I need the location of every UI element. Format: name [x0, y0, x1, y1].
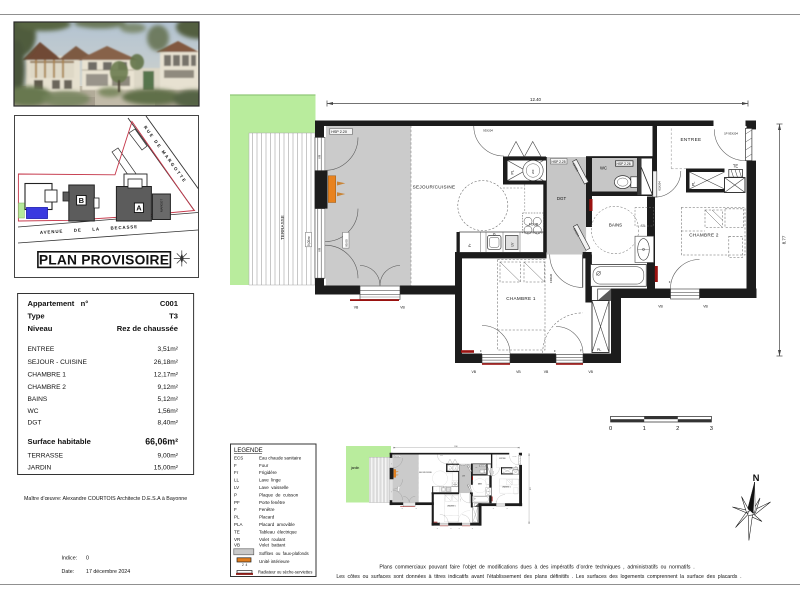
svg-text:Type: Type — [28, 312, 45, 321]
svg-text:1P 93X204: 1P 93X204 — [724, 132, 738, 136]
svg-text:Unité intérieure: Unité intérieure — [259, 559, 290, 564]
svg-text:VB: VB — [400, 306, 405, 310]
svg-text:Four: Four — [259, 463, 269, 468]
svg-text:VB: VB — [703, 305, 708, 309]
svg-text:8,40m²: 8,40m² — [157, 420, 178, 427]
svg-text:Date:: Date: — [62, 569, 75, 575]
svg-text:HSP 2.25: HSP 2.25 — [552, 160, 566, 164]
svg-text:HSP 2.26: HSP 2.26 — [617, 162, 631, 166]
svg-text:VB: VB — [472, 370, 477, 374]
svg-text:9,12m²: 9,12m² — [157, 384, 178, 391]
svg-text:90.00: 90.00 — [344, 239, 348, 247]
svg-text:F: F — [554, 349, 556, 353]
svg-text:PLA: PLA — [234, 522, 243, 527]
svg-text:VB: VB — [658, 305, 663, 309]
svg-text:PL: PL — [597, 348, 601, 352]
svg-text:15,00m²: 15,00m² — [154, 465, 179, 472]
svg-text:Indice:: Indice: — [62, 556, 78, 562]
svg-text:9,00m²: 9,00m² — [307, 236, 311, 246]
svg-text:Tableau électrique: Tableau électrique — [259, 529, 297, 534]
svg-text:12.40: 12.40 — [530, 97, 542, 102]
svg-text:ENTREE: ENTREE — [680, 137, 701, 142]
svg-text:2 4: 2 4 — [242, 563, 248, 567]
svg-text:VB: VB — [516, 370, 521, 374]
svg-text:F: F — [234, 463, 237, 468]
svg-text:B: B — [79, 196, 85, 205]
svg-text:63X204: 63X204 — [658, 181, 662, 191]
svg-text:MARGOT: MARGOT — [160, 199, 164, 212]
svg-text:200: 200 — [531, 169, 535, 174]
svg-text:5,12m²: 5,12m² — [157, 396, 178, 403]
svg-text:SEJOUR/CUISINE: SEJOUR/CUISINE — [413, 185, 456, 190]
svg-text:PL: PL — [511, 170, 515, 174]
svg-text:3: 3 — [710, 426, 713, 432]
svg-text:TERRASSE: TERRASSE — [280, 215, 285, 240]
svg-text:Eau chaude sanitaire: Eau chaude sanitaire — [259, 455, 302, 460]
svg-text:Plaque de cuisson: Plaque de cuisson — [259, 492, 299, 497]
svg-text:Les côtes ou surfaces sont: Les côtes ou surfaces sont données à tit… — [336, 574, 741, 580]
svg-text:VR: VR — [234, 537, 241, 542]
svg-text:Surface habitable: Surface habitable — [28, 437, 91, 446]
svg-text:PL: PL — [234, 515, 240, 520]
svg-text:1,56m²: 1,56m² — [157, 408, 178, 415]
svg-text:Volet battant: Volet battant — [259, 543, 286, 548]
svg-text:Niveau: Niveau — [28, 324, 53, 333]
svg-text:Lave linge: Lave linge — [259, 478, 281, 483]
svg-text:Lave vaisselle: Lave vaisselle — [259, 485, 289, 490]
svg-text:0: 0 — [609, 426, 612, 432]
svg-text:FRIGO: FRIGO — [549, 273, 553, 283]
svg-text:DGT: DGT — [557, 196, 567, 201]
svg-text:PF: PF — [234, 500, 240, 505]
svg-text:CHAMBRE 2: CHAMBRE 2 — [689, 233, 719, 238]
svg-text:TERRASSE: TERRASSE — [28, 453, 64, 460]
svg-text:Maître d’œuvre: Alexandre: Maître d’œuvre: Alexandre COURTOIS Archi… — [24, 496, 187, 502]
svg-text:9,00m²: 9,00m² — [157, 453, 178, 460]
svg-text:TE: TE — [234, 529, 240, 534]
svg-text:C001: C001 — [160, 299, 179, 308]
svg-text:Radiateur ou sèche-serviettes: Radiateur ou sèche-serviettes — [258, 570, 312, 575]
svg-text:CHAMBRE 2: CHAMBRE 2 — [28, 384, 67, 391]
svg-text:F: F — [669, 280, 671, 284]
svg-text:FOUR: FOUR — [529, 223, 539, 227]
svg-text:Rez de chaussée: Rez de chaussée — [117, 324, 178, 333]
svg-text:LL: LL — [234, 478, 240, 483]
svg-text:1: 1 — [643, 426, 646, 432]
svg-text:N: N — [753, 473, 760, 484]
svg-text:Fr: Fr — [234, 470, 239, 475]
svg-text:F: F — [580, 349, 582, 353]
svg-text:P: P — [234, 492, 237, 497]
svg-text:93X204: 93X204 — [483, 129, 493, 133]
svg-text:Porte fenêtre: Porte fenêtre — [259, 500, 286, 505]
svg-text:Frigidère: Frigidère — [259, 470, 277, 475]
svg-text:jardin: jardin — [350, 466, 359, 470]
svg-text:3,51m²: 3,51m² — [157, 346, 178, 353]
svg-text:VB: VB — [354, 306, 359, 310]
svg-text:F: F — [234, 507, 237, 512]
svg-text:LL: LL — [642, 224, 646, 228]
svg-text:DGT: DGT — [28, 420, 42, 427]
svg-text:T3: T3 — [169, 312, 178, 321]
svg-text:Soffites ou faux-plafonds: Soffites ou faux-plafonds — [259, 551, 309, 556]
svg-text:BAINS: BAINS — [28, 396, 48, 403]
svg-text:F: F — [480, 349, 482, 353]
svg-text:0: 0 — [86, 556, 89, 562]
svg-text:WC: WC — [600, 166, 607, 171]
svg-text:SEJOUR - CUISINE: SEJOUR - CUISINE — [28, 359, 88, 366]
svg-text:VB: VB — [588, 370, 593, 374]
svg-text:TE: TE — [733, 164, 739, 169]
svg-text:HSP 2.20: HSP 2.20 — [331, 130, 347, 134]
svg-text:PL: PL — [692, 182, 696, 186]
svg-text:VB: VB — [234, 543, 240, 548]
svg-text:Placard: Placard — [259, 515, 275, 520]
svg-text:12,17m²: 12,17m² — [154, 372, 179, 379]
svg-text:2: 2 — [676, 426, 679, 432]
svg-text:CHAMBRE 1: CHAMBRE 1 — [28, 372, 67, 379]
svg-text:Appartement n°: Appartement n° — [28, 299, 89, 308]
svg-text:ENTREE: ENTREE — [28, 346, 55, 353]
svg-text:WC: WC — [28, 408, 39, 415]
svg-text:LV: LV — [234, 485, 239, 490]
svg-text:Fenêtre: Fenêtre — [259, 507, 275, 512]
svg-text:26,18m²: 26,18m² — [154, 359, 179, 366]
svg-text:Plans commerciaux pouvant f: Plans commerciaux pouvant faire l’objet … — [379, 565, 694, 571]
svg-text:17 décembre 2024: 17 décembre 2024 — [86, 569, 130, 575]
svg-text:Placard amovible: Placard amovible — [259, 522, 295, 527]
svg-text:CHAMBRE 1: CHAMBRE 1 — [506, 296, 536, 301]
svg-text:66,06m²: 66,06m² — [145, 437, 178, 447]
svg-text:Volet roulant: Volet roulant — [259, 537, 286, 542]
svg-text:JARDIN: JARDIN — [28, 465, 52, 472]
svg-text:A: A — [136, 204, 142, 213]
svg-text:PLAN PROVISOIRE: PLAN PROVISOIRE — [39, 253, 169, 268]
svg-text:VB: VB — [544, 370, 549, 374]
svg-text:ECS: ECS — [234, 455, 243, 460]
svg-text:8.77: 8.77 — [782, 235, 787, 244]
svg-text:BAINS: BAINS — [609, 223, 622, 228]
